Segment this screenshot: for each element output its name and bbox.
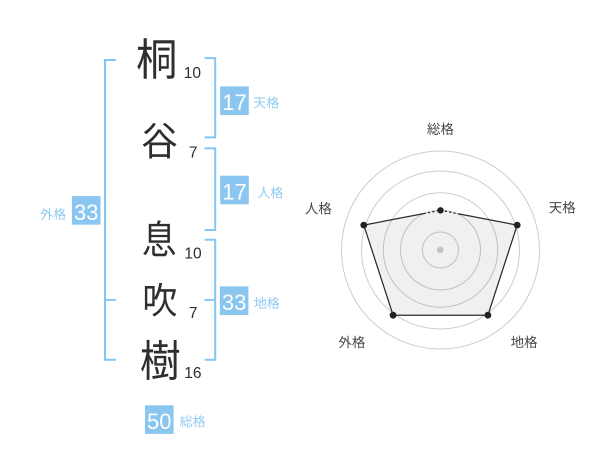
- svg-text:33: 33: [74, 200, 98, 225]
- svg-text:7: 7: [189, 144, 198, 161]
- svg-text:17: 17: [222, 90, 246, 115]
- svg-text:10: 10: [184, 245, 202, 262]
- svg-text:7: 7: [189, 305, 198, 322]
- svg-text:16: 16: [184, 365, 201, 382]
- svg-text:10: 10: [184, 65, 202, 82]
- svg-text:17: 17: [222, 179, 246, 204]
- svg-text:33: 33: [222, 290, 246, 315]
- svg-text:50: 50: [147, 409, 171, 434]
